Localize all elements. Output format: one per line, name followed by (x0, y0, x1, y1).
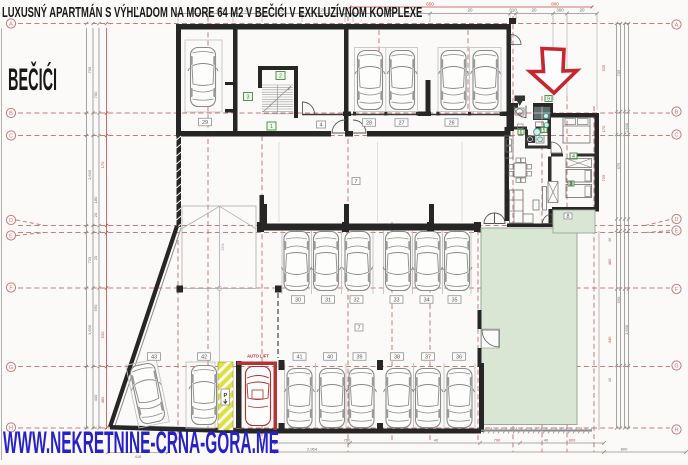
svg-text:700: 700 (93, 91, 98, 98)
svg-text:30: 30 (295, 298, 301, 304)
svg-text:705: 705 (616, 69, 621, 76)
svg-text:790: 790 (494, 438, 501, 443)
svg-text:15%: 15% (221, 243, 225, 251)
svg-text:29: 29 (202, 120, 208, 126)
svg-text:4: 4 (319, 123, 322, 129)
svg-text:800: 800 (569, 438, 576, 443)
svg-text:530: 530 (100, 331, 105, 338)
svg-text:9: 9 (547, 97, 550, 103)
svg-text:28: 28 (366, 121, 372, 127)
svg-text:AUTO LIFT: AUTO LIFT (247, 354, 269, 359)
svg-text:BEČIĆI: BEČIĆI (8, 62, 57, 98)
svg-text:B: B (675, 110, 679, 116)
svg-text:20: 20 (531, 8, 537, 13)
svg-text:C: C (675, 133, 679, 139)
svg-text:38: 38 (394, 355, 400, 361)
svg-text:525: 525 (601, 64, 606, 71)
svg-text:42: 42 (201, 355, 207, 361)
svg-text:39: 39 (356, 355, 362, 361)
svg-text:20: 20 (467, 8, 473, 13)
svg-text:2,964: 2,964 (307, 447, 318, 452)
svg-text:40: 40 (608, 378, 612, 382)
svg-text:800: 800 (621, 447, 628, 452)
svg-text:G: G (9, 365, 13, 371)
svg-text:1,640: 1,640 (87, 169, 92, 180)
svg-text:1,630: 1,630 (87, 324, 92, 335)
svg-text:310: 310 (509, 8, 517, 13)
svg-text:8: 8 (566, 214, 569, 220)
svg-text:D: D (9, 218, 13, 224)
svg-text:36: 36 (456, 355, 462, 361)
svg-text:43: 43 (151, 355, 157, 361)
svg-text:D: D (675, 217, 679, 223)
svg-text:C: C (9, 134, 13, 140)
svg-text:1,630: 1,630 (624, 324, 629, 335)
svg-text:180: 180 (93, 196, 98, 203)
svg-text:27: 27 (398, 121, 404, 127)
svg-text:1: 1 (270, 124, 273, 130)
svg-text:E: E (675, 229, 679, 235)
svg-text:725: 725 (601, 174, 606, 181)
svg-text:41: 41 (296, 355, 302, 361)
svg-text:26: 26 (448, 121, 454, 127)
svg-text:3: 3 (247, 95, 250, 101)
svg-text:WWW.NEKRETNINE-CRNA-GORA.ME: WWW.NEKRETNINE-CRNA-GORA.ME (3, 426, 279, 460)
svg-text:40: 40 (608, 238, 612, 242)
svg-text:3: 3 (570, 182, 573, 188)
svg-text:5: 5 (543, 128, 546, 134)
svg-text:G: G (674, 364, 678, 370)
svg-text:H: H (675, 428, 679, 434)
svg-text:650: 650 (426, 2, 434, 7)
svg-text:A: A (9, 22, 13, 28)
svg-text:35: 35 (451, 298, 457, 304)
svg-text:20: 20 (93, 255, 98, 260)
svg-text:800: 800 (551, 2, 559, 7)
svg-text:440: 440 (607, 336, 612, 343)
svg-text:725: 725 (87, 256, 92, 263)
svg-text:40: 40 (434, 438, 439, 443)
svg-text:675: 675 (616, 162, 621, 169)
svg-text:37: 37 (425, 355, 431, 361)
svg-text:6: 6 (520, 130, 523, 136)
svg-text:31: 31 (325, 298, 331, 304)
svg-text:40: 40 (544, 438, 549, 443)
svg-text:590: 590 (616, 296, 621, 303)
svg-text:34: 34 (423, 298, 429, 304)
svg-text:7: 7 (354, 179, 357, 185)
svg-text:440: 440 (93, 394, 98, 401)
svg-text:A: A (675, 23, 679, 29)
svg-text:B: B (9, 111, 13, 117)
svg-text:40: 40 (327, 355, 333, 361)
svg-text:480: 480 (607, 258, 612, 265)
svg-text:170: 170 (601, 125, 606, 132)
svg-text:760: 760 (344, 438, 351, 443)
svg-text:480: 480 (100, 396, 105, 403)
svg-text:20: 20 (579, 8, 585, 13)
svg-text:32: 32 (353, 298, 359, 304)
svg-text:33: 33 (393, 298, 399, 304)
svg-text:705: 705 (87, 66, 92, 73)
svg-text:E: E (9, 234, 13, 240)
svg-text:LUXUSNÝ APARTMÁN S VÝHĽADOM NA: LUXUSNÝ APARTMÁN S VÝHĽADOM NA MORE 64 M… (2, 3, 422, 21)
svg-text:P: P (223, 393, 227, 399)
svg-text:4: 4 (572, 154, 575, 160)
svg-text:2: 2 (279, 74, 282, 80)
svg-text:300: 300 (556, 8, 564, 13)
svg-text:7: 7 (357, 326, 360, 332)
svg-text:590: 590 (93, 304, 98, 311)
svg-text:20: 20 (93, 212, 98, 217)
svg-text:170: 170 (100, 161, 105, 168)
svg-text:1,640: 1,640 (624, 122, 629, 133)
